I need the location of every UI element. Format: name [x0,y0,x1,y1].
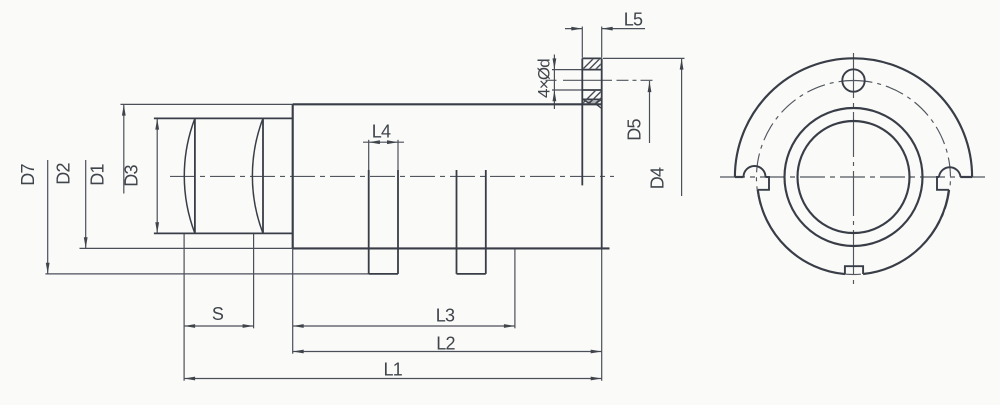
svg-text:D1: D1 [88,164,108,186]
svg-text:D3: D3 [122,165,142,187]
svg-text:S: S [212,304,224,324]
svg-text:L2: L2 [436,334,455,354]
svg-text:4×Ød: 4×Ød [535,59,554,98]
svg-text:L5: L5 [624,10,643,30]
svg-text:L4: L4 [372,122,391,142]
svg-text:D5: D5 [625,119,645,141]
svg-text:L1: L1 [383,360,402,380]
svg-text:L3: L3 [436,306,455,326]
svg-text:D2: D2 [54,163,74,185]
svg-text:D4: D4 [648,167,668,189]
svg-text:D7: D7 [18,164,38,186]
